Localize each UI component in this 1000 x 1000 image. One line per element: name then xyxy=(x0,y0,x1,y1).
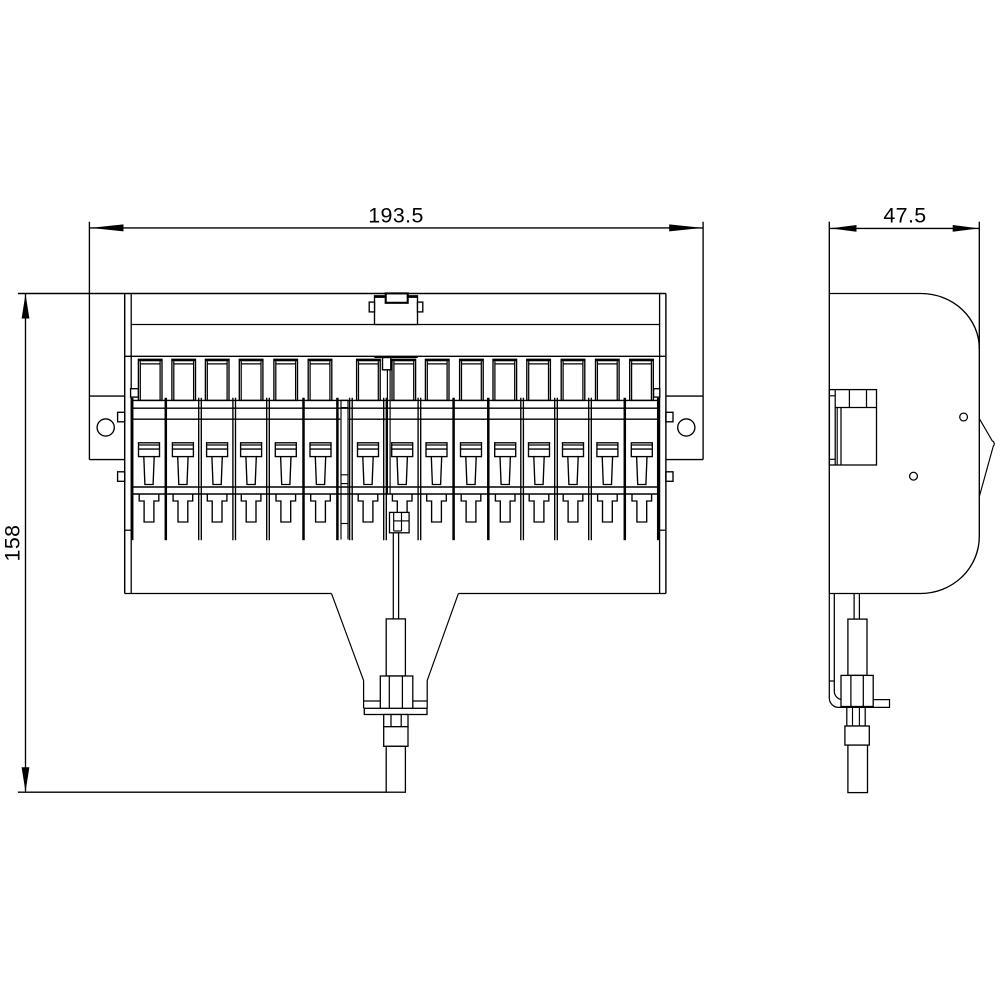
svg-text:193.5: 193.5 xyxy=(368,204,424,228)
svg-text:47.5: 47.5 xyxy=(883,204,926,228)
svg-text:158: 158 xyxy=(0,525,24,562)
